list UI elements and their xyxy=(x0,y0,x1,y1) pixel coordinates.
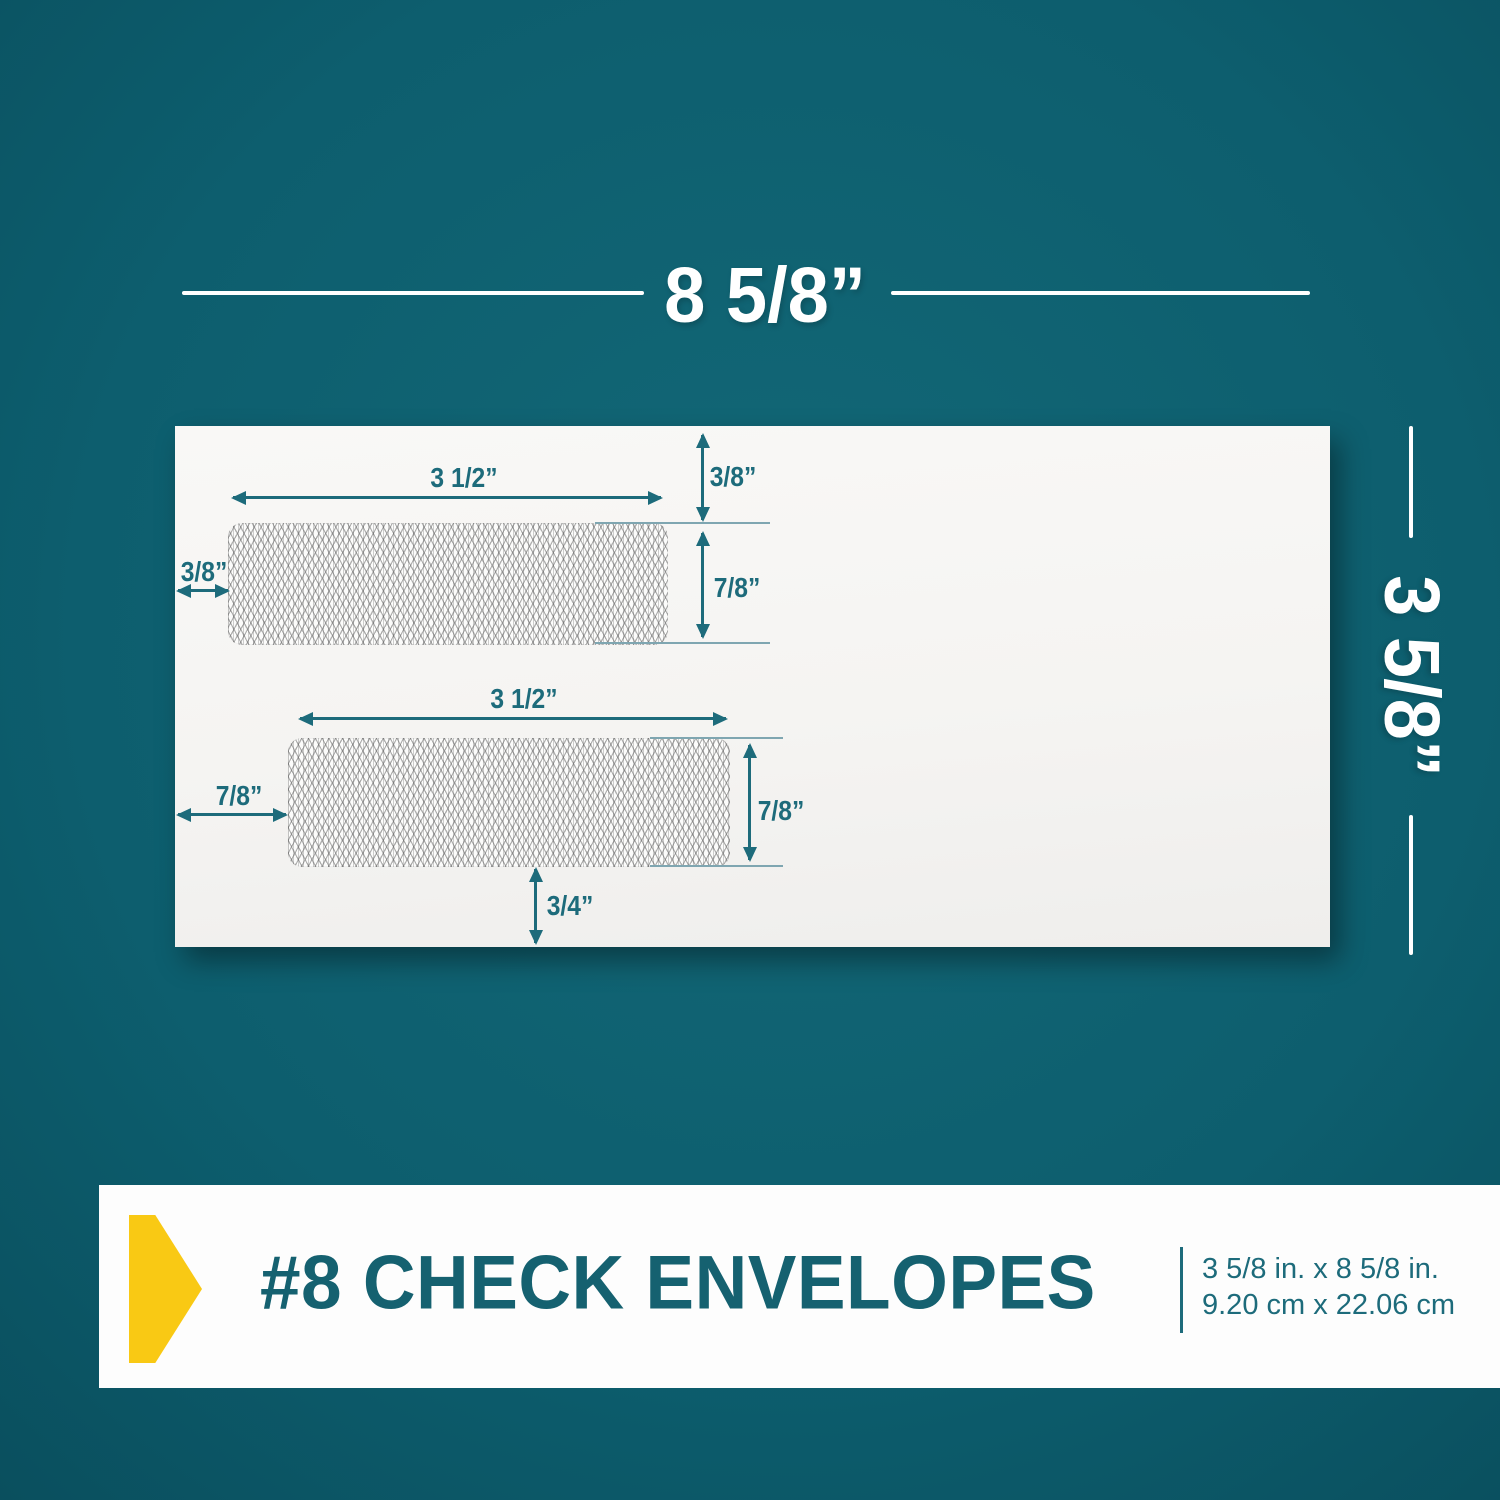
height-dim-line-top xyxy=(1409,426,1413,538)
bottom-window-height-label: 7/8” xyxy=(758,795,805,827)
top-window-left-margin-arrow xyxy=(178,589,228,592)
banner-divider xyxy=(1180,1247,1183,1333)
top-window-height-arrow xyxy=(701,533,704,637)
height-dim-line-bottom xyxy=(1409,815,1413,955)
product-hero: 8 5/8” 3 5/8” 3 1/2” 3/8” 3/8” 7/8” 3 1/… xyxy=(0,0,1500,1500)
size-inches: 3 5/8 in. x 8 5/8 in. xyxy=(1202,1251,1455,1287)
bottom-window-left-margin-arrow xyxy=(178,813,286,816)
banner: #8 CHECK ENVELOPES 3 5/8 in. x 8 5/8 in.… xyxy=(99,1185,1500,1388)
yellow-arrow-icon xyxy=(129,1215,202,1363)
bottom-window-width-label: 3 1/2” xyxy=(490,683,557,715)
bottom-window-bottom-margin-arrow xyxy=(534,869,537,943)
bottom-window-bottom-margin-label: 3/4” xyxy=(547,890,594,922)
top-window-width-arrow xyxy=(233,496,661,499)
extension-line-bottom-window-bottom xyxy=(650,865,783,867)
size-cm: 9.20 cm x 22.06 cm xyxy=(1202,1287,1455,1323)
bottom-window-height-arrow xyxy=(748,745,751,860)
banner-sizes: 3 5/8 in. x 8 5/8 in. 9.20 cm x 22.06 cm xyxy=(1202,1251,1455,1323)
envelope xyxy=(175,426,1330,947)
bottom-window-left-margin-label: 7/8” xyxy=(216,780,263,812)
top-window-height-label: 7/8” xyxy=(714,572,761,604)
width-dim-label: 8 5/8” xyxy=(664,250,866,341)
extension-line-top-window-bottom xyxy=(595,642,770,644)
extension-line-top-window-top xyxy=(595,522,770,524)
width-dim-line-right xyxy=(891,291,1310,295)
bottom-window-width-arrow xyxy=(300,717,726,720)
top-window-top-margin-label: 3/8” xyxy=(710,461,757,493)
security-tint-window-bottom xyxy=(288,738,730,867)
product-title: #8 CHECK ENVELOPES xyxy=(260,1240,1096,1327)
top-window-top-margin-arrow xyxy=(701,435,704,520)
top-window-width-label: 3 1/2” xyxy=(430,462,497,494)
security-tint-window-top xyxy=(228,523,668,645)
width-dim-line-left xyxy=(182,291,644,295)
height-dim-label: 3 5/8” xyxy=(1367,575,1458,777)
extension-line-bottom-window-top xyxy=(650,737,783,739)
